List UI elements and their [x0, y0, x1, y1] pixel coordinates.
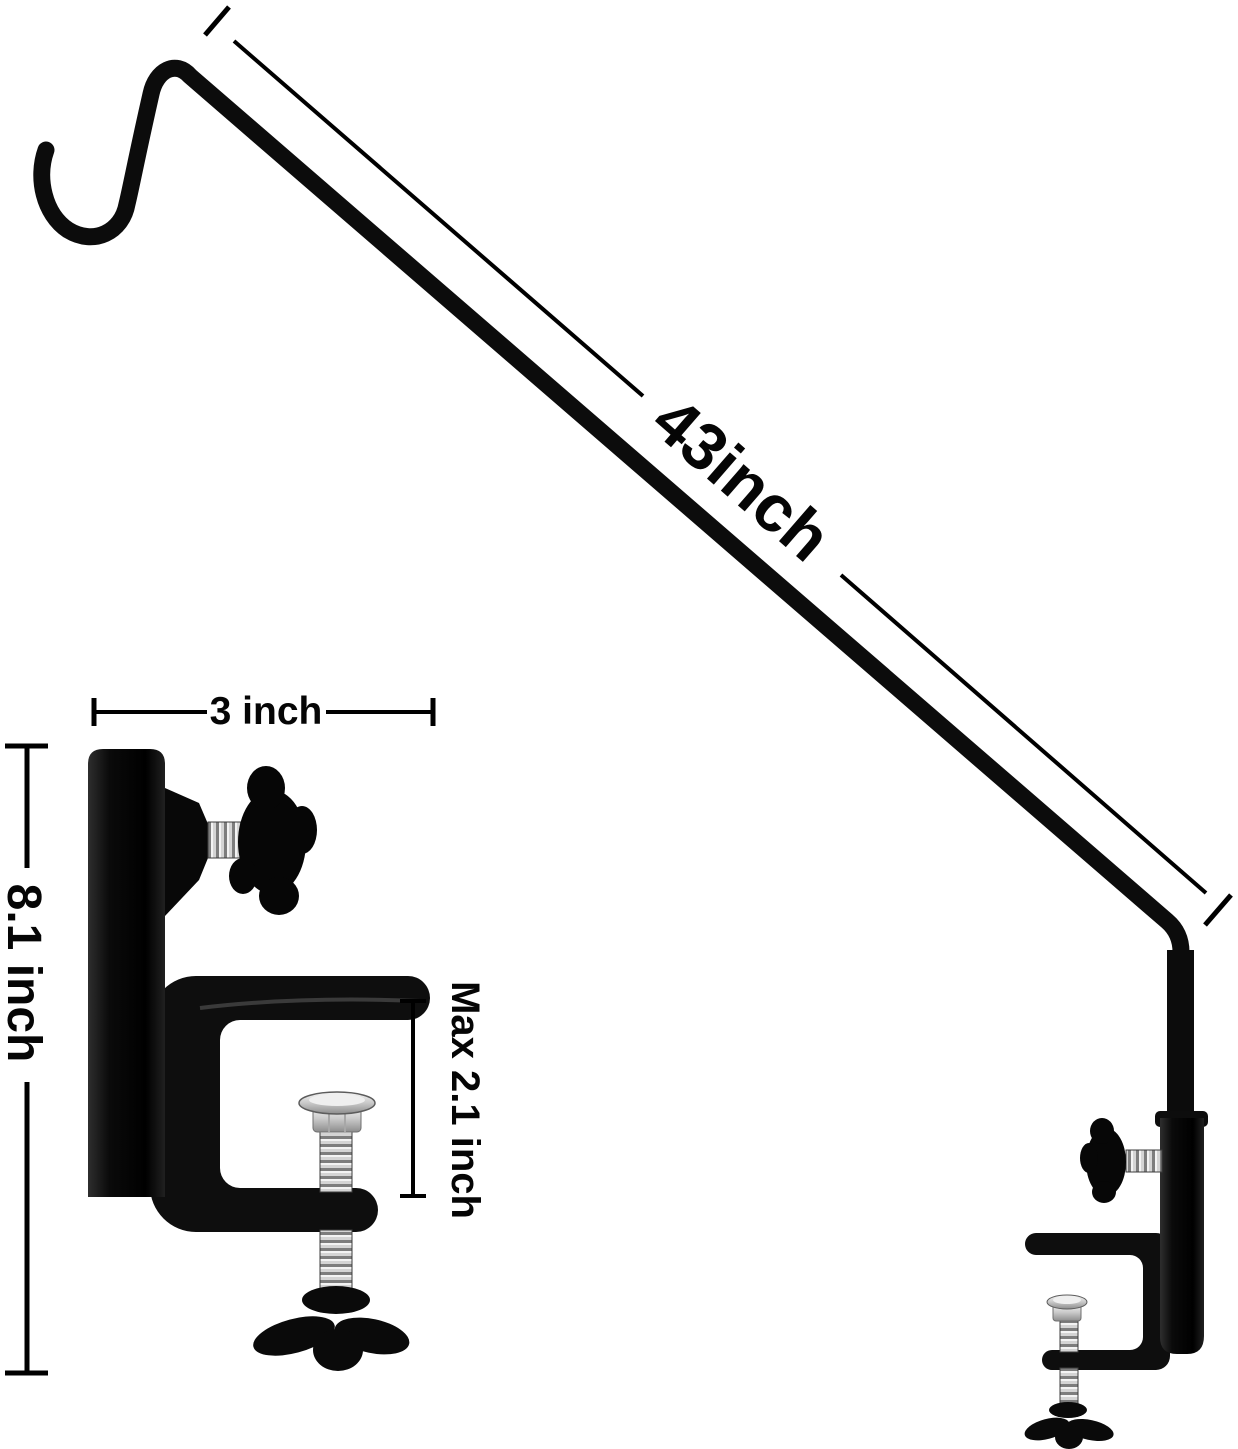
pole-sleeve [1160, 1118, 1204, 1354]
bolt-t-knob [249, 1286, 413, 1371]
knob-hex-gusset [165, 788, 208, 916]
dim-line-upper-segment [234, 41, 643, 396]
dim-line-lower-segment [841, 575, 1206, 893]
bolt-washer-highlight [309, 1094, 365, 1106]
pole-hook-path [42, 68, 1181, 1122]
c-clamp-body [150, 976, 430, 1232]
pole-assembly [42, 68, 1194, 1122]
clamp-attached-view [1022, 1111, 1208, 1449]
knob-screw-thread [208, 822, 242, 858]
bolt-thread-upper [1060, 1318, 1078, 1352]
tightening-knob [229, 766, 317, 915]
pole-lower-section [1167, 950, 1194, 1122]
bolt-thread-lower [320, 1230, 352, 1290]
t-knob-lobe-bottom [313, 1329, 363, 1371]
label-mount-height: 8.1 inch [0, 884, 50, 1063]
clamp-detail-view: 3 inch 8.1 inch Max 2.1 inch [0, 690, 487, 1373]
mounting-tube [88, 749, 165, 1197]
knob-lobe-left [1080, 1143, 1098, 1173]
knob-lobe-bottom [259, 877, 299, 915]
tightening-knob-small [1080, 1118, 1126, 1203]
label-clamp-opening: Max 2.1 inch [443, 981, 487, 1219]
t-knob-rim [1049, 1402, 1087, 1418]
knob-screw-thread-small [1126, 1150, 1162, 1172]
dim-tick-bottom [1205, 895, 1231, 925]
bolt-washer-highlight [1053, 1296, 1081, 1304]
knob-lobe-bottom [1092, 1181, 1116, 1203]
knob-lobe-top [247, 766, 285, 810]
clamp-bolt-small [1022, 1295, 1115, 1449]
knob-lobe-right [287, 806, 317, 854]
t-knob-rim [302, 1286, 370, 1314]
bolt-thread-upper [320, 1128, 352, 1192]
product-dimension-diagram: 43inch [0, 0, 1238, 1449]
knob-lobe-lower-left [229, 858, 257, 894]
diagram-canvas: 43inch [0, 0, 1238, 1449]
label-mount-width: 3 inch [210, 690, 323, 733]
knob-lobe-top [1090, 1118, 1114, 1144]
dimension-clamp-opening [400, 1001, 426, 1196]
bolt-thread-lower [1060, 1368, 1078, 1404]
bolt-t-knob-small [1022, 1402, 1115, 1449]
dim-tick-top [205, 7, 229, 35]
t-knob-lobe-bottom [1055, 1425, 1083, 1449]
